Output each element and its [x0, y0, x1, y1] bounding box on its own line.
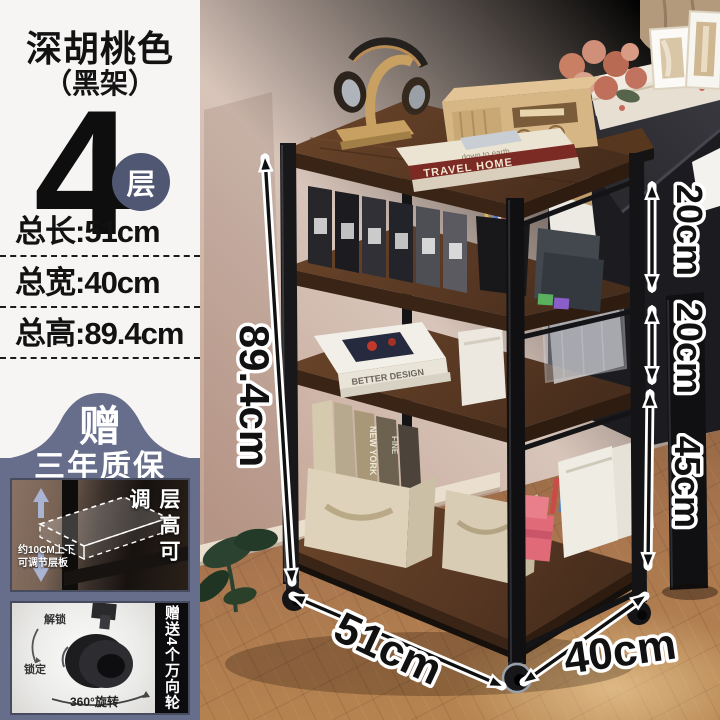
adjustable-caption-line2: 可调节层板	[18, 557, 75, 570]
file-spine-text-1: NEW YORK	[368, 426, 378, 476]
feature-adjustable-thumb: 约10CM上下 可调节层板 层高可调	[10, 478, 190, 592]
spec-length: 总长:51cm	[0, 206, 200, 257]
label-total-height: 89.4cm	[231, 325, 278, 467]
adjustable-caption-line1: 约10CM上下	[18, 544, 75, 557]
rotate-label: 360°旋转	[70, 693, 119, 710]
up-arrow-icon	[33, 488, 49, 518]
label-gap-mid: 20cm	[669, 302, 710, 394]
spec-panel: 深胡桃色 （黑架） 4 层 总长:51cm 总宽:40cm 总高:89.4cm …	[0, 0, 200, 720]
product-photo: NEW YORK FINE	[200, 0, 720, 720]
wheels-side-strip: 赠送4个万向轮	[155, 603, 188, 713]
tier-unit-badge: 层	[112, 153, 170, 211]
lock-label: 锁定	[24, 661, 46, 677]
product-infographic: 深胡桃色 （黑架） 4 层 总长:51cm 总宽:40cm 总高:89.4cm …	[0, 0, 720, 720]
wheels-side-label: 赠送4个万向轮	[161, 605, 182, 710]
adjustable-side-label: 层高可调	[123, 488, 183, 590]
arrow-gap-bottom	[648, 394, 650, 566]
lock-arc-arrow	[32, 629, 38, 663]
adjustable-caption: 约10CM上下 可调节层板	[18, 544, 75, 570]
desk-leg-shadow	[662, 584, 718, 600]
gift-section: 赠 三年质保 约10CM上下 可调节层板 层高可调	[0, 388, 200, 720]
unlock-label: 解锁	[44, 611, 66, 627]
spec-width: 总宽:40cm	[0, 257, 200, 308]
caster-stem	[99, 615, 110, 630]
label-gap-top: 20cm	[669, 184, 710, 276]
spec-height: 总高:89.4cm	[0, 308, 200, 359]
rotate-arrow-head	[142, 691, 150, 698]
desk-sorter	[534, 228, 604, 312]
spec-list: 总长:51cm 总宽:40cm 总高:89.4cm	[0, 206, 200, 359]
file-spine-text-2: FINE	[390, 436, 399, 455]
feature-wheels-thumb: 解锁 锁定 360°旋转 赠送4个万向轮	[10, 601, 190, 715]
caster-wheel-hub	[97, 654, 125, 678]
label-gap-bottom: 45cm	[667, 436, 708, 528]
